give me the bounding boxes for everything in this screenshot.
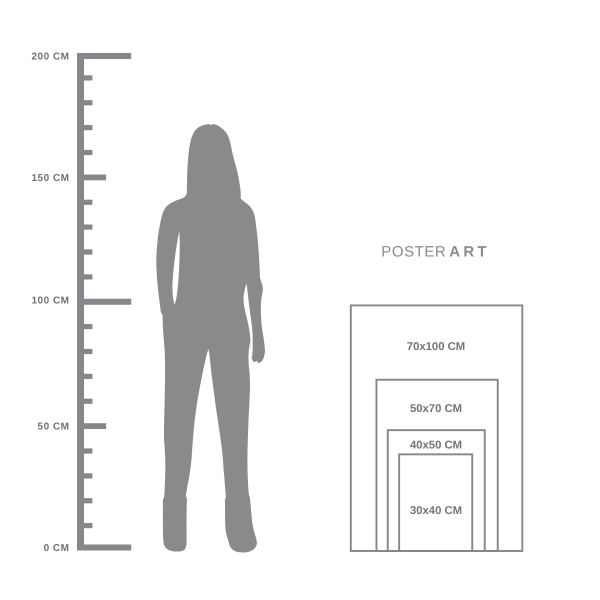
svg-text:100 CM: 100 CM [31, 295, 69, 306]
svg-text:50 CM: 50 CM [38, 422, 70, 433]
svg-text:200 CM: 200 CM [31, 52, 69, 63]
svg-text:30x40 CM: 30x40 CM [410, 505, 462, 517]
svg-text:ART: ART [449, 244, 489, 261]
svg-text:POSTER: POSTER [381, 244, 446, 261]
svg-text:50x70 CM: 50x70 CM [410, 403, 462, 415]
svg-text:150 CM: 150 CM [31, 173, 69, 184]
svg-text:70x100 CM: 70x100 CM [407, 341, 465, 353]
svg-text:0 CM: 0 CM [44, 543, 70, 554]
svg-text:40x50 CM: 40x50 CM [410, 440, 462, 452]
